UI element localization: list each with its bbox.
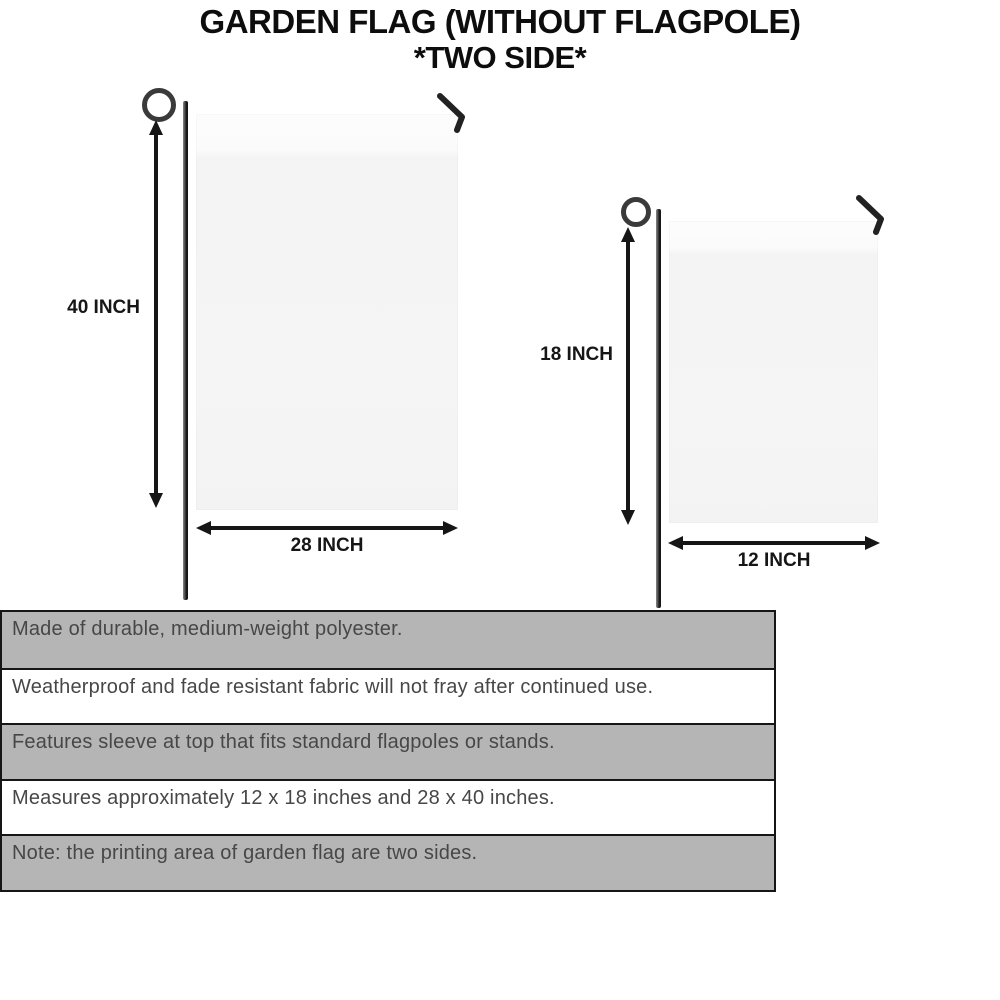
feature-text: Measures approximately 12 x 18 inches an… — [12, 787, 555, 809]
small-flag-pole — [656, 209, 661, 608]
small-pole-loop-icon — [621, 197, 651, 227]
page-title: GARDEN FLAG (WITHOUT FLAGPOLE) *TWO SIDE… — [0, 4, 1000, 76]
large-pole-loop-icon — [142, 88, 176, 122]
small-height-arrow — [618, 227, 638, 525]
small-flag-cloth — [669, 221, 878, 523]
feature-row-weatherproof: Weatherproof and fade resistant fabric w… — [2, 668, 774, 724]
large-flag-hook-icon — [435, 92, 471, 134]
large-width-label: 28 INCH — [196, 535, 458, 557]
small-width-label: 12 INCH — [668, 550, 880, 572]
large-height-arrow — [146, 120, 166, 508]
feature-text: Features sleeve at top that fits standar… — [12, 731, 555, 753]
title-line-2: *TWO SIDE* — [0, 41, 1000, 76]
feature-row-sleeve: Features sleeve at top that fits standar… — [2, 723, 774, 779]
feature-table: Made of durable, medium-weight polyester… — [0, 610, 776, 892]
feature-text: Made of durable, medium-weight polyester… — [12, 618, 403, 640]
feature-row-measures: Measures approximately 12 x 18 inches an… — [2, 779, 774, 835]
feature-text: Weatherproof and fade resistant fabric w… — [12, 676, 653, 698]
small-height-label: 18 INCH — [508, 344, 613, 366]
title-line-1: GARDEN FLAG (WITHOUT FLAGPOLE) — [0, 4, 1000, 41]
large-flag-cloth — [196, 114, 458, 510]
feature-row-note: Note: the printing area of garden flag a… — [2, 834, 774, 890]
large-height-label: 40 INCH — [40, 297, 140, 319]
small-flag-hook-icon — [854, 194, 890, 236]
feature-text: Note: the printing area of garden flag a… — [12, 842, 477, 864]
large-flag-pole — [183, 101, 188, 600]
feature-row-material: Made of durable, medium-weight polyester… — [2, 612, 774, 668]
garden-flag-infographic: GARDEN FLAG (WITHOUT FLAGPOLE) *TWO SIDE… — [0, 0, 1000, 1000]
